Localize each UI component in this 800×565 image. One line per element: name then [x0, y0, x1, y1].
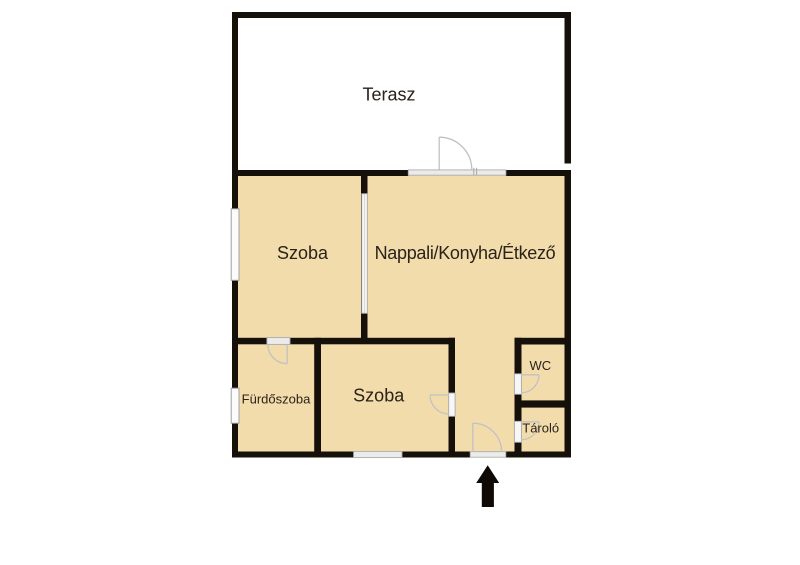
svg-text:Tároló: Tároló	[522, 421, 559, 436]
svg-text:Nappali/Konyha/Étkező: Nappali/Konyha/Étkező	[375, 243, 556, 263]
svg-text:Szoba: Szoba	[277, 243, 329, 263]
svg-text:Terasz: Terasz	[362, 85, 415, 105]
svg-text:Szoba: Szoba	[353, 386, 405, 406]
svg-text:Fürdőszoba: Fürdőszoba	[242, 392, 311, 407]
svg-text:WC: WC	[529, 358, 551, 373]
